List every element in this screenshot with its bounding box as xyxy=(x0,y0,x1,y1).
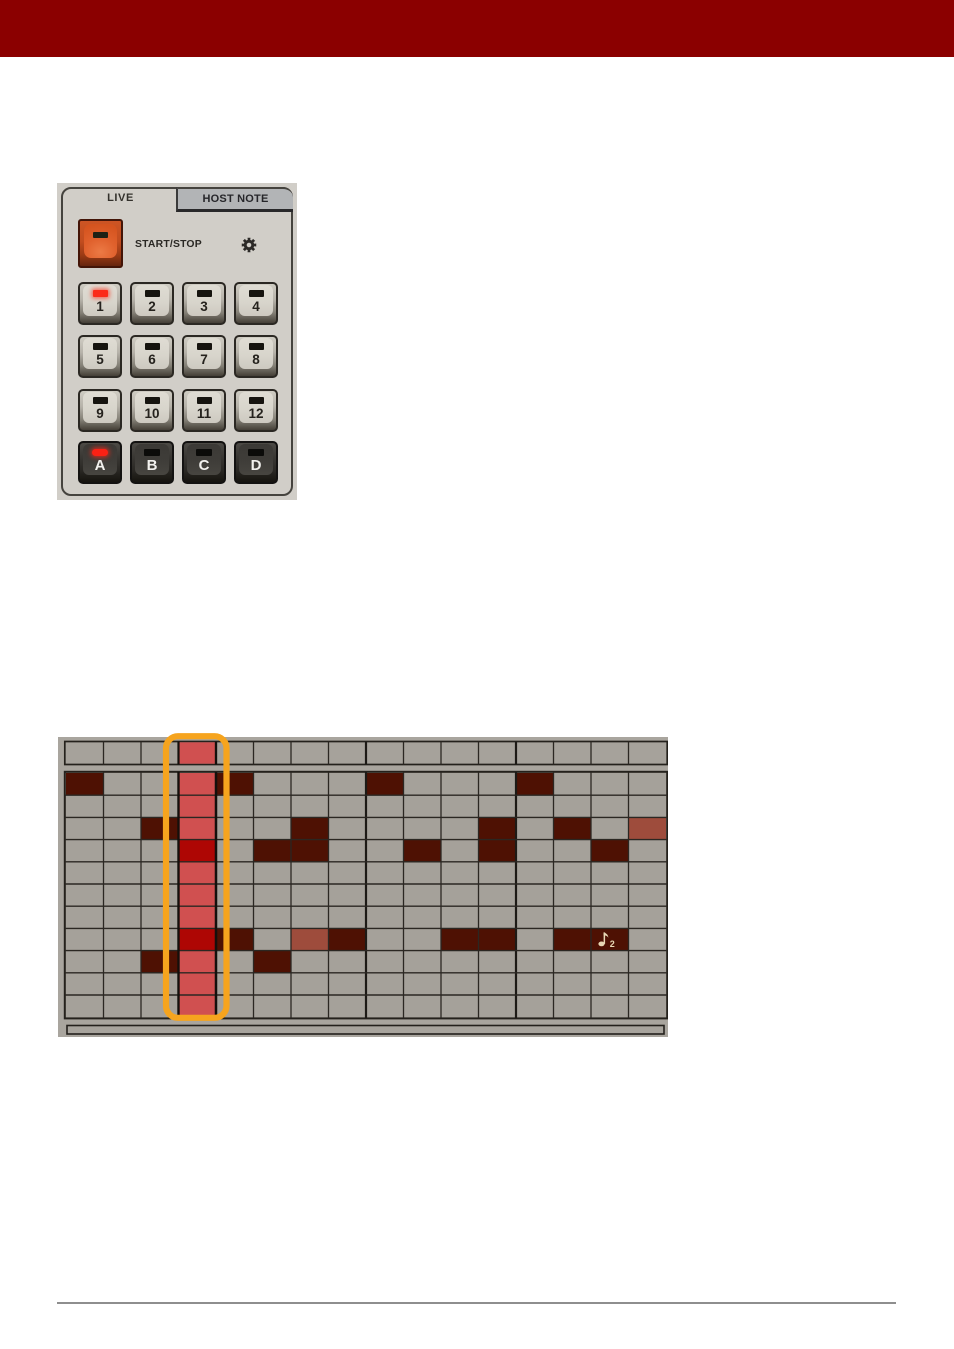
svg-text:2: 2 xyxy=(610,939,615,949)
